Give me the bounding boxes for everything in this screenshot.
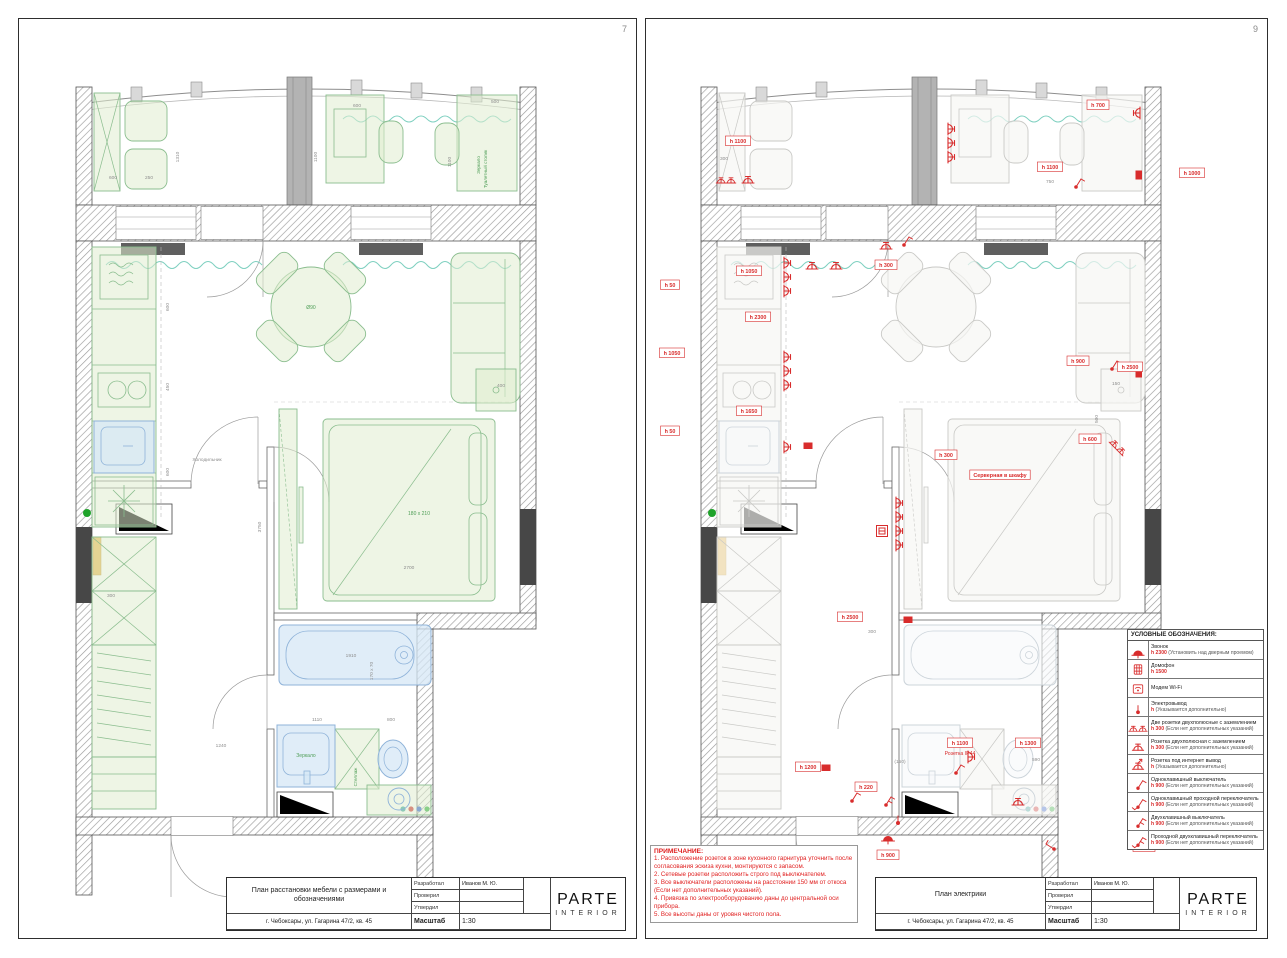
electric-label: h 220 [859, 785, 873, 791]
note-line: 2. Сетевые розетки расположить строго по… [654, 871, 854, 879]
dimension-label: Туалетный столик [482, 149, 488, 188]
scale-value: 1:30 [1092, 914, 1180, 930]
electric-label: h 600 [1083, 437, 1097, 443]
project-address: г. Чебоксары, ул. Гагарина 47/2, кв. 45 [227, 914, 412, 930]
socket-icon [784, 379, 791, 391]
switch-icon [850, 793, 860, 803]
legend-item: Домофонh 1500 [1128, 660, 1263, 679]
dimension-label: Холодильник [192, 457, 222, 463]
doorbell-icon [882, 837, 895, 845]
dimension-label: 600 [353, 103, 361, 109]
electric-label: h 900 [1071, 359, 1085, 365]
dimension-label: 1310 [175, 151, 181, 162]
dimension-label: 1100 [447, 157, 453, 168]
dimension-label: 450 [165, 383, 171, 391]
dimension-label: 600 [165, 468, 171, 476]
dimension-label: 1100 [313, 152, 319, 163]
brand-logo: PARTE INTERIOR [1180, 878, 1256, 930]
legend: УСЛОВНЫЕ ОБОЗНАЧЕНИЯ: Звонокh 2300 (Уста… [1127, 629, 1264, 850]
brand-subtitle: INTERIOR [1185, 910, 1250, 917]
page-number: 9 [1253, 24, 1258, 34]
dimension-label: 600 [165, 303, 171, 311]
legend-item-note: h 1500 [1151, 669, 1174, 675]
electric-outlet-icon [804, 443, 813, 450]
legend-item: Проходной двухклавишный переключательh 9… [1128, 831, 1263, 849]
legend-item-note: h 300 (Если нет дополнительных указаний) [1151, 745, 1253, 751]
note-line: 3. Все выключатели расположены на рассто… [654, 879, 854, 895]
notes-box: ПРИМЕЧАНИЕ: 1. Расположение розеток в зо… [650, 845, 858, 923]
project-address: г. Чебоксары, ул. Гагарина 47/2, кв. 45 [876, 914, 1046, 930]
electric-label: h 1050 [664, 351, 681, 357]
electric-label: h 700 [1091, 103, 1105, 109]
electric-label: h 2500 [1122, 365, 1139, 371]
legend-item-note: h 900 (Если нет дополнительных указаний) [1151, 840, 1258, 846]
dimension-label: 3750 [257, 521, 263, 532]
note-line: 1. Расположение розеток в зоне кухонного… [654, 855, 854, 871]
scale-value: 1:30 [460, 914, 551, 930]
legend-item: Одноклавишный выключательh 900 (Если нет… [1128, 774, 1263, 793]
title-block: План электрики Разработал Проверил Утвер… [875, 877, 1257, 931]
electric-label: h 2300 [750, 315, 767, 321]
electric-label: h 2500 [842, 615, 859, 621]
legend-item-note: h 2300 (Установить над дверным проемом) [1151, 650, 1254, 656]
approved-label: Утвердил [412, 902, 460, 914]
developed-label: Разработал [1046, 878, 1092, 890]
drawing-canvas: 7 5001100ЗеркалоТуалетный столик60011006… [0, 0, 1287, 958]
dimension-label: Ø90 [306, 305, 316, 311]
dimension-label: 300 [868, 629, 876, 635]
brand-name: PARTE [557, 891, 619, 909]
legend-switch1-icon [1128, 774, 1149, 792]
electric-label: h 1650 [741, 409, 758, 415]
dimension-label: 300 [107, 593, 115, 599]
dimension-label: 300 [720, 156, 728, 162]
checked-label: Проверил [412, 890, 460, 902]
developed-label: Разработал [412, 878, 460, 890]
drawing-title: План расстановки мебели с размерами и об… [227, 878, 412, 914]
legend-switch1p-icon [1128, 793, 1149, 811]
electric-label: h 300 [879, 263, 893, 269]
drawing-title: План электрики [876, 878, 1046, 914]
electric-label: h 1300 [1020, 741, 1037, 747]
page-number: 7 [622, 24, 627, 34]
dimension-label: Стеллаж [353, 767, 358, 787]
legend-switch2-icon [1128, 812, 1149, 830]
brand-logo: PARTE INTERIOR [551, 878, 625, 930]
floor-plan-furniture: 5001100ЗеркалоТуалетный столик6001100600… [21, 57, 591, 937]
socket-icon [784, 365, 791, 377]
socket-icon [784, 257, 791, 269]
dimension-label: 150 [1112, 381, 1120, 387]
dimension-label: 500 [491, 99, 499, 105]
electric-outlet-icon [822, 765, 831, 772]
electric-label: h 1200 [800, 765, 817, 771]
electric-label: h 1050 [741, 269, 758, 275]
scale-label: Масштаб [412, 914, 460, 930]
dimension-label: 750 [1046, 179, 1054, 185]
electric-outlet-icon [1136, 171, 1143, 180]
dimension-label: 250 [145, 175, 153, 181]
title-block: План расстановки мебели с размерами и об… [226, 877, 626, 931]
legend-item-note: h 900 (Если нет дополнительных указаний) [1151, 783, 1253, 789]
dimension-label: 180 x 210 [408, 511, 430, 517]
scale-label: Масштаб [1046, 914, 1092, 930]
dimension-label: 1110 [312, 717, 322, 723]
electric-label: Розетка IP44 [945, 751, 976, 757]
electric-label: h 50 [665, 429, 676, 435]
electric-outlet-icon [904, 617, 913, 624]
legend-item-note: h 300 (Если нет дополнительных указаний) [1151, 726, 1256, 732]
legend-items: Звонокh 2300 (Установить над дверным про… [1128, 641, 1263, 849]
dimension-label: 1240 [216, 743, 227, 749]
developed-value: Иванов М. Ю. [460, 878, 524, 890]
sheet-electrical-plan: 9 h 1100300h 700h 1100750h 1000h 1050h 5… [645, 18, 1268, 939]
legend-title: УСЛОВНЫЕ ОБОЗНАЧЕНИЯ: [1128, 630, 1263, 641]
legend-item-name: Модем Wi-Fi [1151, 685, 1182, 691]
dimension-label: 2700 [404, 565, 415, 571]
electric-label: h 300 [939, 453, 953, 459]
legend-modem-icon [1128, 679, 1149, 697]
electric-label: Серверная в шкафу [973, 472, 1026, 479]
developed-value: Иванов М. Ю. [1092, 878, 1154, 890]
note-line: 4. Привязка по электрооборудованию даны … [654, 895, 854, 911]
electric-label: h 50 [665, 283, 676, 289]
dimension-label: 170 x 70 [369, 661, 375, 680]
dimension-label: (150) [894, 759, 906, 765]
electric-label: h 1000 [1184, 171, 1201, 177]
dimension-label: Зеркало [476, 156, 481, 174]
legend-socket2-icon [1128, 717, 1149, 735]
socket-icon [784, 351, 791, 363]
notes-lines: 1. Расположение розеток в зоне кухонного… [654, 855, 854, 920]
legend-bell-icon [1128, 641, 1149, 659]
checked-label: Проверил [1046, 890, 1092, 902]
approved-label: Утвердил [1046, 902, 1092, 914]
brand-subtitle: INTERIOR [555, 910, 620, 917]
dimension-label: 400 [497, 383, 505, 389]
notes-title: ПРИМЕЧАНИЕ: [654, 848, 854, 855]
electric-label: h 1100 [1042, 165, 1059, 171]
sheet-furniture-plan: 7 5001100ЗеркалоТуалетный столик60011006… [18, 18, 637, 939]
legend-socketnet-icon [1128, 755, 1149, 773]
dimension-label: Зеркало [296, 753, 316, 759]
server-icon [877, 526, 888, 537]
dimension-label: 500 [1094, 415, 1100, 423]
note-line: 5. Все высоты даны от уровня чистого пол… [654, 911, 854, 919]
socket-icon [784, 271, 791, 283]
electric-label: h 1100 [730, 139, 747, 145]
legend-electro-icon [1128, 698, 1149, 716]
dimension-label: 600 [109, 175, 117, 181]
dimension-label: 800 [387, 717, 395, 723]
dimension-label: 590 [1032, 757, 1040, 763]
electric-label: h 900 [881, 853, 895, 859]
legend-item-note: h 900 (Если нет дополнительных указаний) [1151, 802, 1259, 808]
socket-icon [880, 243, 892, 250]
legend-item: Одноклавишный проходной переключательh 9… [1128, 793, 1263, 812]
legend-item: Электровыводh (Указывается дополнительно… [1128, 698, 1263, 717]
electric-label: h 1100 [952, 741, 969, 747]
legend-item: Звонокh 2300 (Установить над дверным про… [1128, 641, 1263, 660]
legend-item: Розетка двухполюсная с заземлениемh 300 … [1128, 736, 1263, 755]
legend-intercom-icon [1128, 660, 1149, 678]
legend-item: Модем Wi-Fi [1128, 679, 1263, 698]
socket-icon [784, 285, 791, 297]
legend-item-note: h (Указывается дополнительно) [1151, 707, 1226, 713]
socket-icon [784, 441, 791, 453]
legend-socket-icon [1128, 736, 1149, 754]
legend-switch2p-icon [1128, 831, 1149, 849]
brand-name: PARTE [1187, 891, 1249, 909]
legend-item-note: h 900 (Если нет дополнительных указаний) [1151, 821, 1253, 827]
dimension-label: 1910 [346, 653, 357, 659]
legend-item-note: h (Указывается дополнительно) [1151, 764, 1226, 770]
legend-item: Розетка под интернет выводh (Указывается… [1128, 755, 1263, 774]
legend-item: Двухклавишный выключательh 900 (Если нет… [1128, 812, 1263, 831]
legend-item: Две розетки двухполюсные с заземлениемh … [1128, 717, 1263, 736]
